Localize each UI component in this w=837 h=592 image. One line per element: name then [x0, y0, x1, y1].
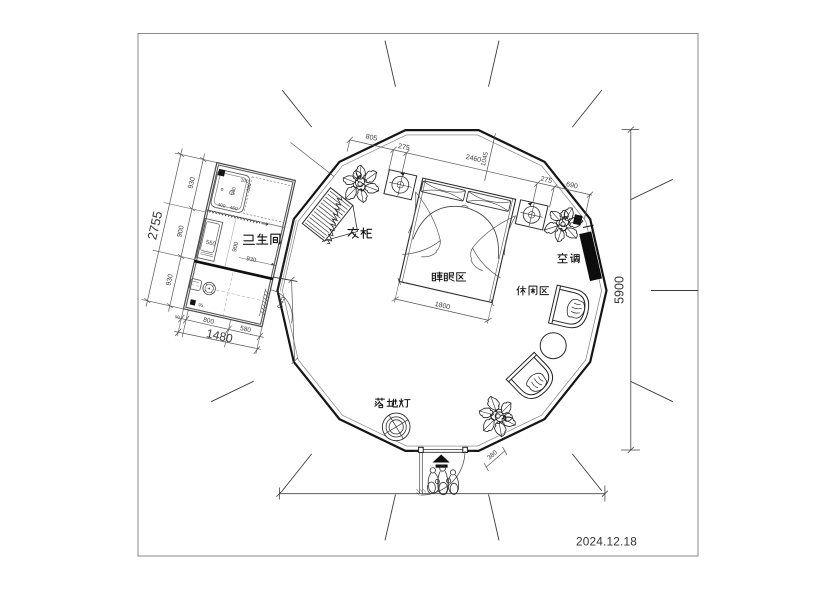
svg-text:5900: 5900 [613, 276, 627, 304]
svg-text:2024.12.18: 2024.12.18 [576, 535, 637, 549]
